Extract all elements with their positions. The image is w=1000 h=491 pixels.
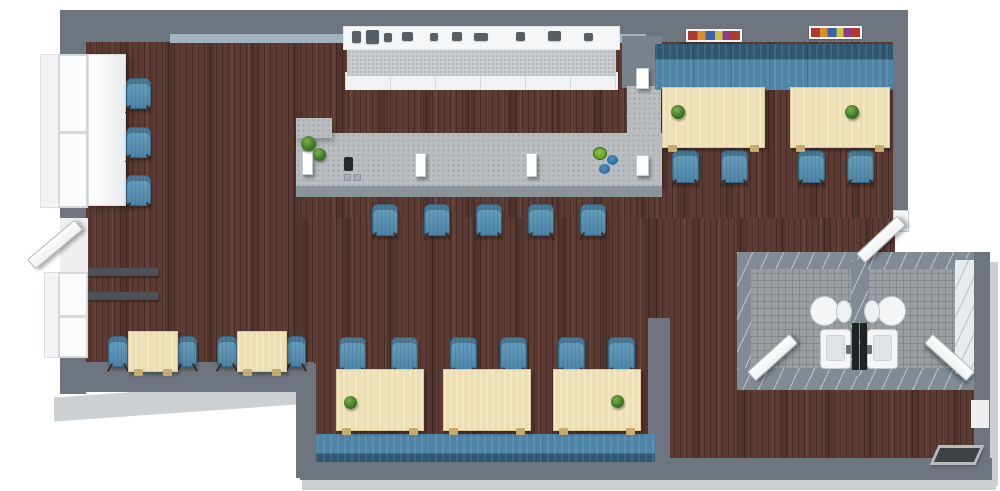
restroom-mirror-panel (860, 323, 867, 370)
wall-art (686, 29, 742, 42)
table-plant (671, 105, 685, 119)
left-window-upper (58, 54, 88, 208)
dining-chair (672, 150, 699, 183)
window-counter (88, 54, 126, 206)
side-door-opening (971, 400, 989, 428)
bar-appliance (384, 33, 392, 42)
coffee-machine (352, 31, 361, 43)
dining-chair (798, 150, 825, 183)
coffee-machine (366, 30, 379, 44)
menu-stand (302, 151, 313, 175)
floor-plan (0, 0, 1000, 491)
window-armchair (126, 78, 151, 109)
bar-plant (301, 136, 316, 151)
cafe-table (128, 331, 178, 372)
wall-ledge (88, 292, 158, 300)
bar-appliance (430, 33, 438, 41)
wall-ledge (88, 268, 158, 276)
bar-appliance (452, 32, 462, 41)
toilet (810, 295, 852, 325)
decor-bowl (607, 155, 618, 165)
left-window-lower (58, 272, 88, 358)
bar-stool (580, 204, 606, 236)
dining-chair (217, 336, 237, 367)
dining-chair (500, 337, 527, 371)
dining-chair (177, 336, 197, 367)
dining-chair (721, 150, 748, 183)
bar-stool (476, 204, 502, 236)
table-plant (611, 395, 624, 408)
wall-right (893, 10, 908, 212)
bar-counter-front (296, 186, 662, 197)
backbar-counter (347, 46, 616, 76)
bar-stool (528, 204, 554, 236)
decor-bowl (593, 147, 607, 160)
doormat (930, 445, 985, 465)
dining-chair (391, 337, 418, 371)
dining-table (790, 87, 890, 148)
toilet (864, 295, 906, 325)
window-armchair (126, 127, 151, 158)
bar-appliance (516, 32, 525, 41)
bar-item (344, 174, 351, 181)
table-plant (344, 396, 357, 409)
dining-chair (108, 336, 128, 367)
bar-plant (313, 148, 326, 161)
bar-appliance (584, 33, 593, 41)
dining-chair (339, 337, 366, 371)
sink (820, 329, 851, 369)
table-plant (845, 105, 859, 119)
dining-chair (608, 337, 635, 371)
restroom-mirror-panel (852, 323, 859, 370)
bar-stool (424, 204, 450, 236)
menu-stand (636, 155, 649, 176)
banquette-upper (655, 44, 893, 90)
menu-stand (636, 68, 649, 89)
dining-chair (450, 337, 477, 371)
bar-counter-corner (296, 118, 332, 138)
bar-appliance (548, 31, 561, 41)
window-armchair (126, 175, 151, 206)
bar-item (354, 174, 361, 181)
wall-art (809, 26, 862, 39)
bar-appliance (474, 33, 488, 41)
decor-bowl (599, 164, 610, 174)
bar-appliance (402, 32, 413, 41)
wall-right-lower (974, 252, 990, 468)
dining-chair (558, 337, 585, 371)
cash-register (344, 157, 353, 171)
dining-table (553, 369, 641, 431)
dining-chair (286, 336, 306, 367)
menu-stand (526, 153, 537, 177)
banquette-lower (316, 434, 655, 462)
sink (867, 329, 898, 369)
menu-stand (415, 153, 426, 177)
cafe-table (237, 331, 287, 372)
bar-stool (372, 204, 398, 236)
dining-table (443, 369, 531, 431)
dining-chair (847, 150, 874, 183)
